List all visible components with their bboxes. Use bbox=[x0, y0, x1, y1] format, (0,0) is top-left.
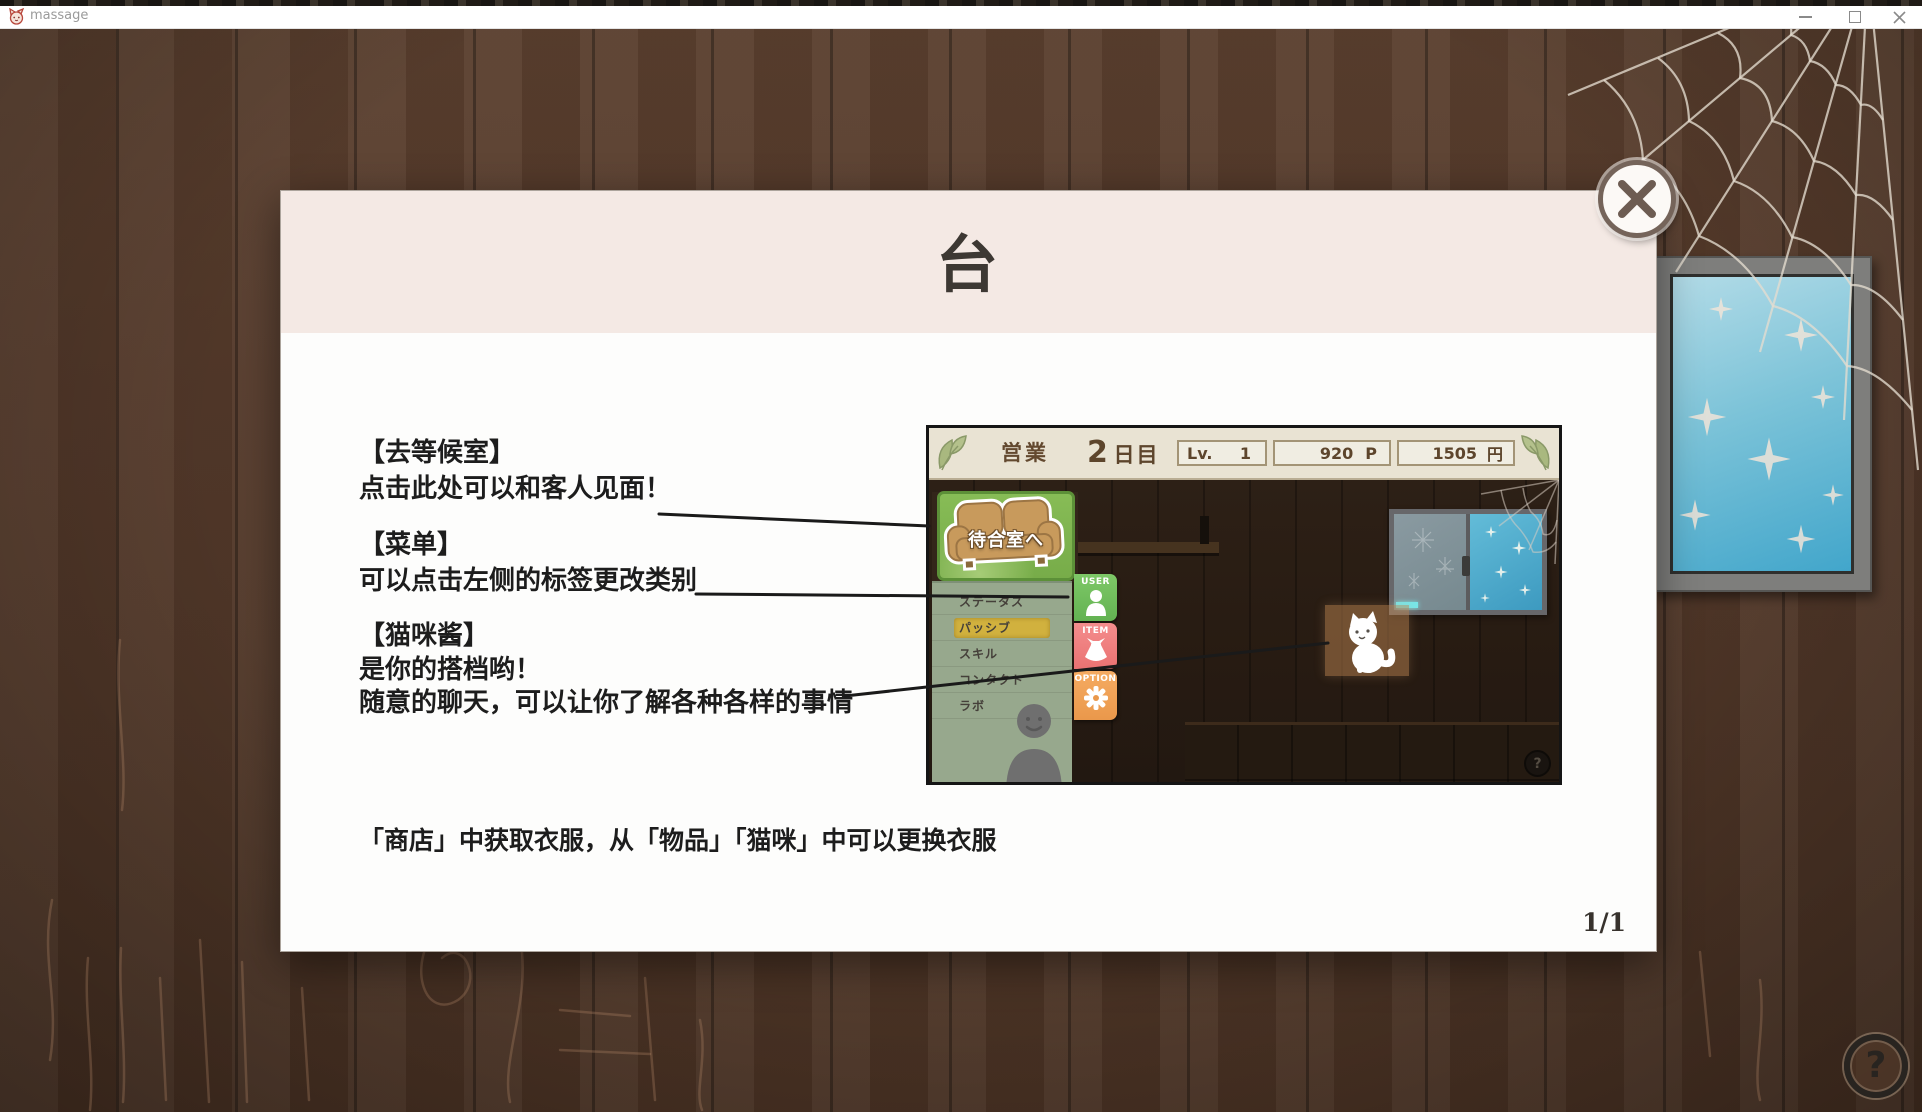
question-mark-icon: ? bbox=[1866, 1048, 1887, 1084]
menu-tab-passive-active: パッシブ bbox=[932, 615, 1072, 641]
help-button[interactable]: ? bbox=[1844, 1034, 1908, 1098]
game-screenshot: 営業 2 日目 Lv. 1 920 P 1505 円 bbox=[926, 425, 1562, 785]
counter-cabinet bbox=[1185, 722, 1559, 782]
minimize-icon bbox=[1799, 16, 1812, 18]
waiting-room-button-label: 待合室へ bbox=[940, 526, 1072, 552]
tutorial-section-waiting-room: 【去等候室】 点击此处可以和客人见面！ bbox=[359, 435, 671, 507]
close-button[interactable] bbox=[1598, 160, 1676, 238]
menu-tab-contact: コンタクト bbox=[932, 667, 1072, 693]
tutorial-dialog: 台 【去等候室】 点击此处可以和客人见面！ 【菜单】 可以点击左侧的标签更改类别… bbox=[280, 190, 1657, 952]
window-handle bbox=[1462, 556, 1470, 576]
section-line: 点击此处可以和客人见面！ bbox=[359, 471, 671, 507]
menu-tab-status: ステータス bbox=[932, 589, 1072, 615]
person-icon bbox=[1084, 588, 1108, 616]
spiderweb-small bbox=[1463, 480, 1559, 566]
footer-note: 「商店」中获取衣服，从「物品」「猫咪」中可以更换衣服 bbox=[359, 821, 997, 857]
section-line: 随意的聊天，可以让你了解各种各样的事情 bbox=[359, 687, 853, 720]
money-value: 1505 bbox=[1432, 444, 1477, 463]
window-close-button[interactable] bbox=[1882, 6, 1916, 28]
window-close-icon bbox=[1893, 11, 1906, 24]
option-button: OPTION bbox=[1074, 671, 1117, 720]
item-button: ITEM bbox=[1074, 623, 1117, 669]
sparkle-glass bbox=[1670, 274, 1854, 574]
leaf-ornament-icon bbox=[1518, 432, 1554, 472]
window-title: massage bbox=[30, 8, 88, 23]
screenshot-room: 待合室へ ステータス パッシブ スキル コンタクト ラボ bbox=[929, 480, 1559, 782]
pouch-icon bbox=[1083, 637, 1109, 663]
maximize-button[interactable] bbox=[1838, 6, 1872, 28]
minimize-button[interactable] bbox=[1788, 6, 1822, 28]
waiting-room-button: 待合室へ bbox=[937, 491, 1075, 581]
money-unit: 円 bbox=[1487, 441, 1503, 465]
section-line: 可以点击左侧的标签更改类别 bbox=[359, 563, 697, 599]
user-button-label: USER bbox=[1081, 577, 1110, 587]
level-box: Lv. 1 bbox=[1177, 440, 1267, 466]
maximize-icon bbox=[1849, 11, 1861, 23]
menu-panel: ステータス パッシブ スキル コンタクト ラボ bbox=[932, 581, 1072, 782]
leaf-ornament-icon bbox=[934, 432, 970, 472]
close-icon bbox=[1603, 165, 1671, 233]
cat-highlight-box bbox=[1325, 605, 1409, 676]
section-line: 是你的搭档哟！ bbox=[359, 654, 853, 687]
level-value: 1 bbox=[1240, 444, 1251, 463]
window-titlebar: massage bbox=[0, 6, 1922, 29]
user-button: USER bbox=[1074, 574, 1117, 621]
dialog-title: 台 bbox=[281, 191, 1656, 333]
app-cat-icon bbox=[8, 8, 25, 25]
tutorial-section-cat: 【猫咪酱】 是你的搭档哟！ 随意的聊天，可以让你了解各种各样的事情 bbox=[359, 618, 853, 720]
sparkle-picture-frame bbox=[1652, 256, 1872, 592]
cat-icon bbox=[1339, 610, 1397, 674]
points-unit: P bbox=[1365, 444, 1377, 463]
points-value: 920 bbox=[1320, 444, 1353, 463]
level-label: Lv. bbox=[1187, 444, 1212, 463]
window-pane-frosted bbox=[1394, 514, 1470, 610]
page-indicator: 1/1 bbox=[1582, 908, 1626, 937]
section-heading: 【猫咪酱】 bbox=[359, 618, 853, 654]
shelf-bracket bbox=[1200, 516, 1209, 544]
screenshot-status-bar: 営業 2 日目 Lv. 1 920 P 1505 円 bbox=[929, 428, 1559, 480]
game-window: 台 【去等候室】 点击此处可以和客人见面！ 【菜单】 可以点击左侧的标签更改类别… bbox=[0, 0, 1922, 1112]
person-silhouette-icon bbox=[1002, 697, 1066, 785]
money-box: 1505 円 bbox=[1397, 440, 1515, 466]
business-mode-label: 営業 bbox=[1001, 428, 1049, 478]
day-counter: 2 日目 bbox=[1087, 428, 1159, 478]
points-box: 920 P bbox=[1273, 440, 1391, 466]
day-unit: 日目 bbox=[1113, 443, 1159, 467]
item-button-label: ITEM bbox=[1082, 626, 1109, 636]
section-heading: 【菜单】 bbox=[359, 527, 697, 563]
section-heading: 【去等候室】 bbox=[359, 435, 671, 471]
option-button-label: OPTION bbox=[1075, 674, 1117, 684]
screenshot-help-icon: ? bbox=[1524, 750, 1551, 777]
menu-tab-skill: スキル bbox=[932, 641, 1072, 667]
tutorial-section-menu: 【菜单】 可以点击左侧的标签更改类别 bbox=[359, 527, 697, 599]
day-value: 2 bbox=[1087, 435, 1108, 470]
gear-icon bbox=[1083, 685, 1109, 711]
